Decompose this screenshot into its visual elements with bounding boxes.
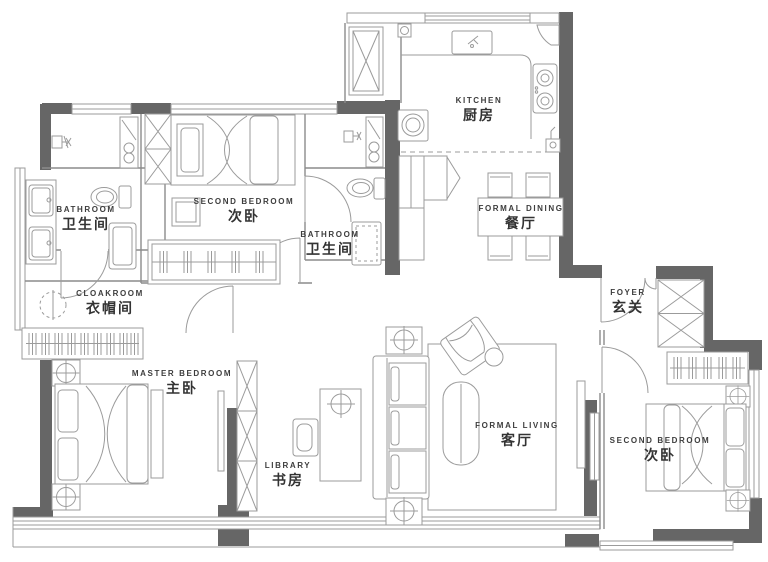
- floor-plan: BATHROOM卫生间 SECOND BEDROOM次卧 BATHROOM卫生间…: [0, 0, 768, 562]
- window-kitchen-top: [347, 13, 559, 23]
- door-entry: [601, 278, 656, 322]
- toilet-icon: [91, 186, 131, 208]
- nightstand: [726, 489, 750, 511]
- room-bathroom-2: [344, 117, 385, 265]
- nightstand: [52, 360, 80, 387]
- window-top-left: [72, 104, 131, 114]
- vanity-top: [120, 117, 138, 168]
- stool-dashed: [40, 290, 66, 320]
- shower-icon: [344, 131, 361, 142]
- partition-hatch: [237, 361, 257, 511]
- washing-machine: [398, 110, 428, 141]
- dining-chair: [488, 173, 512, 197]
- tv-panel: [577, 381, 585, 468]
- bathtub: [109, 223, 136, 269]
- door-second-bedroom-right: [602, 347, 648, 393]
- coffee-table: [443, 382, 479, 465]
- room-master-bedroom: [52, 360, 163, 511]
- floor-plan-canvas: [0, 0, 768, 562]
- desk: [320, 389, 361, 481]
- door-master-suite: [186, 286, 233, 333]
- wardrobe-hatch: [145, 114, 171, 184]
- tall-cabinet: [399, 156, 424, 260]
- window-left: [15, 168, 25, 330]
- pedestal: [386, 497, 422, 525]
- room-foyer: [658, 280, 704, 347]
- dining-table: [478, 198, 563, 236]
- wardrobe: [667, 352, 748, 384]
- dining-chair: [488, 236, 512, 260]
- sofa: [373, 356, 429, 499]
- window-top-mid: [171, 104, 337, 114]
- shower-tub: [352, 222, 381, 265]
- toilet-icon: [347, 178, 385, 199]
- side-table: [485, 348, 503, 366]
- room-second-bedroom-top: [145, 114, 295, 284]
- drain-icon: [398, 24, 411, 37]
- door-bathroom-1: [61, 251, 108, 298]
- dining-chair: [526, 236, 550, 260]
- wardrobe: [22, 328, 143, 359]
- dining-chair: [526, 173, 550, 197]
- room-second-bedroom-right: [590, 352, 750, 512]
- utility-cabinet-hatch: [349, 27, 383, 95]
- door-bathroom-2: [305, 176, 351, 222]
- window-bottom-right: [600, 541, 733, 550]
- fridge: [424, 156, 460, 200]
- small-sink: [546, 127, 560, 152]
- bed: [171, 115, 295, 185]
- desk-chair: [293, 419, 318, 456]
- dresser-panel: [590, 413, 599, 480]
- room-cloakroom: [22, 290, 143, 359]
- kitchen-sink: [452, 31, 492, 54]
- shaft-hatch: [658, 280, 704, 347]
- stove: [533, 64, 557, 113]
- sliding-panel: [218, 391, 224, 471]
- armchair: [439, 316, 501, 377]
- nightstand: [52, 484, 80, 511]
- nightstand: [172, 198, 200, 226]
- bed: [55, 384, 163, 484]
- pedestal: [386, 326, 422, 354]
- room-library: [218, 361, 361, 511]
- bed: [646, 404, 746, 491]
- window-bottom-long: [13, 517, 600, 547]
- corner-shelf: [537, 25, 559, 45]
- vanity-top: [366, 117, 383, 167]
- double-sink: [26, 180, 56, 264]
- wardrobe: [148, 240, 280, 284]
- shower-icon: [52, 136, 71, 148]
- room-formal-living: [373, 316, 585, 525]
- room-formal-dining: [478, 173, 563, 260]
